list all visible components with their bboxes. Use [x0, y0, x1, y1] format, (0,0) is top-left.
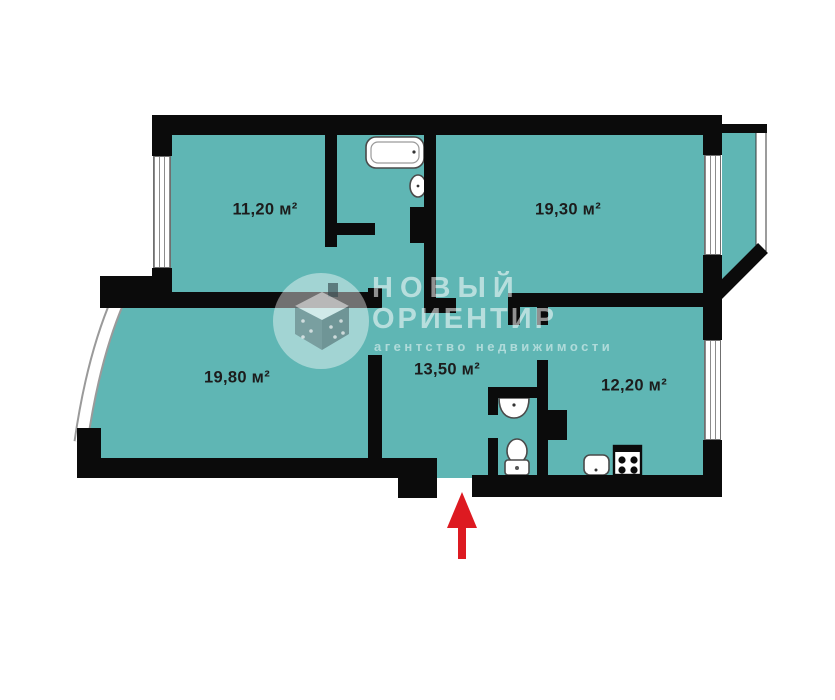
wall-top	[152, 115, 722, 135]
room-label-11-20: 11,20 м²	[232, 201, 297, 220]
bathtub-drain	[412, 150, 415, 153]
wall-wc-left-lower	[488, 438, 498, 478]
wall-bath-foot	[424, 298, 456, 313]
wall-kitchen-door-jamb	[537, 307, 548, 325]
stove-burner	[618, 456, 625, 463]
wc-sink	[499, 398, 529, 418]
kitchen-sink-drain	[595, 469, 598, 472]
window-room-top-right	[704, 155, 721, 255]
wall-bottomleft-corner	[77, 428, 101, 478]
wall-vent-block	[548, 410, 567, 440]
wall-balcony-top	[722, 124, 767, 133]
wall-hall-room1980	[368, 355, 382, 465]
wall-bottom-right	[472, 475, 722, 497]
wall-bottom-left	[77, 458, 437, 478]
wall-kitchen-left	[537, 360, 548, 477]
window-kitchen	[704, 340, 721, 440]
wall-entry-block	[398, 478, 437, 498]
window-room-top-left	[153, 156, 171, 268]
toilet-button	[515, 466, 519, 470]
floor-plan: 11,20 м² 19,30 м² 19,80 м² 13,50 м² 12,2…	[0, 0, 835, 700]
stove-burner	[618, 466, 625, 473]
stove-top-band	[614, 446, 641, 452]
room-label-12-20: 12,20 м²	[601, 377, 667, 396]
stove-burner	[630, 466, 637, 473]
room-label-19-80: 19,80 м²	[204, 369, 270, 388]
wall-bath-right	[424, 135, 436, 313]
room-label-19-30: 19,30 м²	[535, 201, 601, 220]
wall-right-upper	[703, 132, 722, 155]
kitchen-sink	[584, 455, 609, 475]
wall-bath-right-block	[410, 207, 424, 243]
wall-wc-left-upper	[488, 387, 498, 415]
wall-room1930-bottom-hook	[508, 307, 520, 325]
wall-bath-inner	[337, 223, 375, 235]
wc-sink-drain	[512, 403, 515, 406]
wall-bath-left	[325, 135, 337, 247]
wall-divider-jamb	[368, 288, 382, 308]
entrance-arrow	[447, 492, 477, 559]
wall-right-lower	[703, 440, 722, 497]
wall-divider-left	[100, 292, 382, 308]
wall-right-mid	[703, 255, 722, 340]
stove-burner	[630, 456, 637, 463]
room-label-13-50: 13,50 м²	[414, 361, 480, 380]
wall-left-upper	[152, 115, 172, 156]
bathroom-sink-drain	[417, 185, 420, 188]
wall-room1930-bottom	[508, 293, 722, 307]
